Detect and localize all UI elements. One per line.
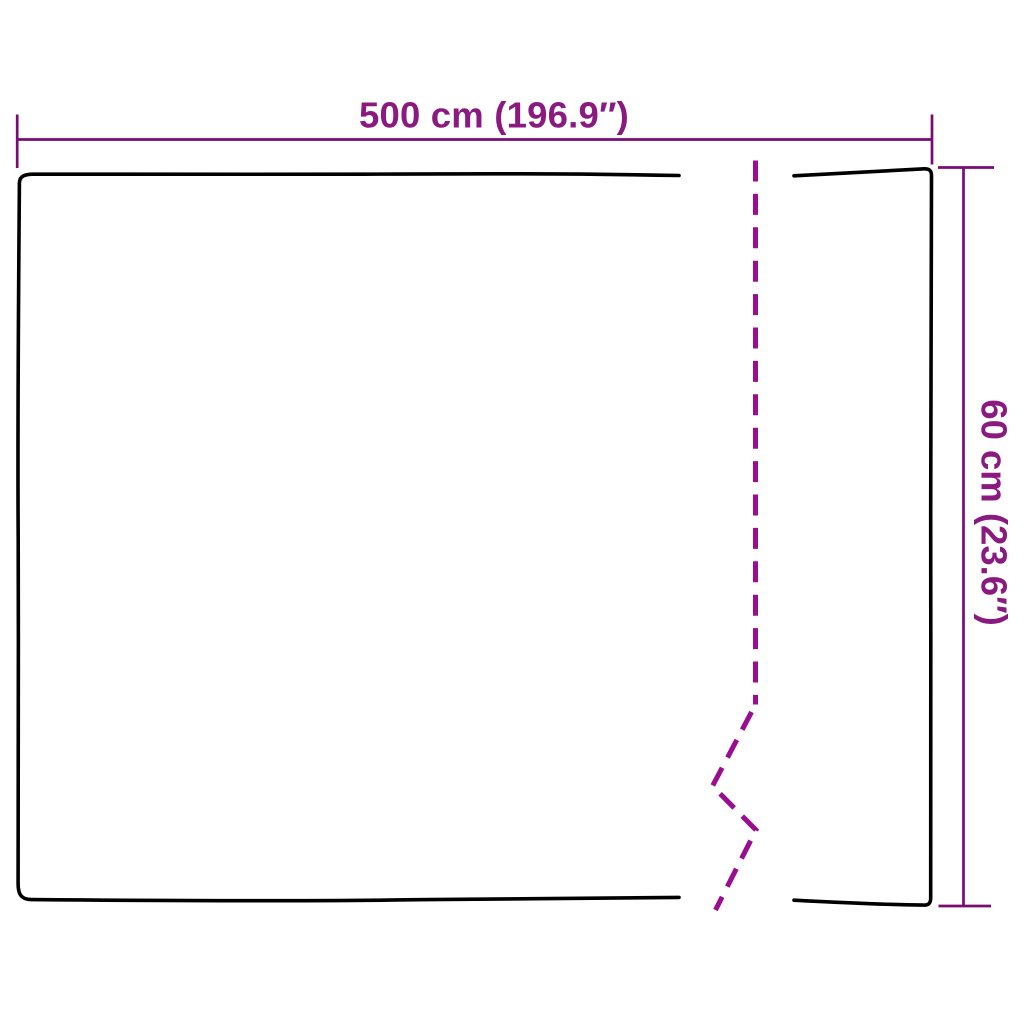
svg-text:500 cm (196.9″): 500 cm (196.9″) — [359, 95, 629, 136]
svg-text:60 cm (23.6″): 60 cm (23.6″) — [974, 399, 1015, 625]
